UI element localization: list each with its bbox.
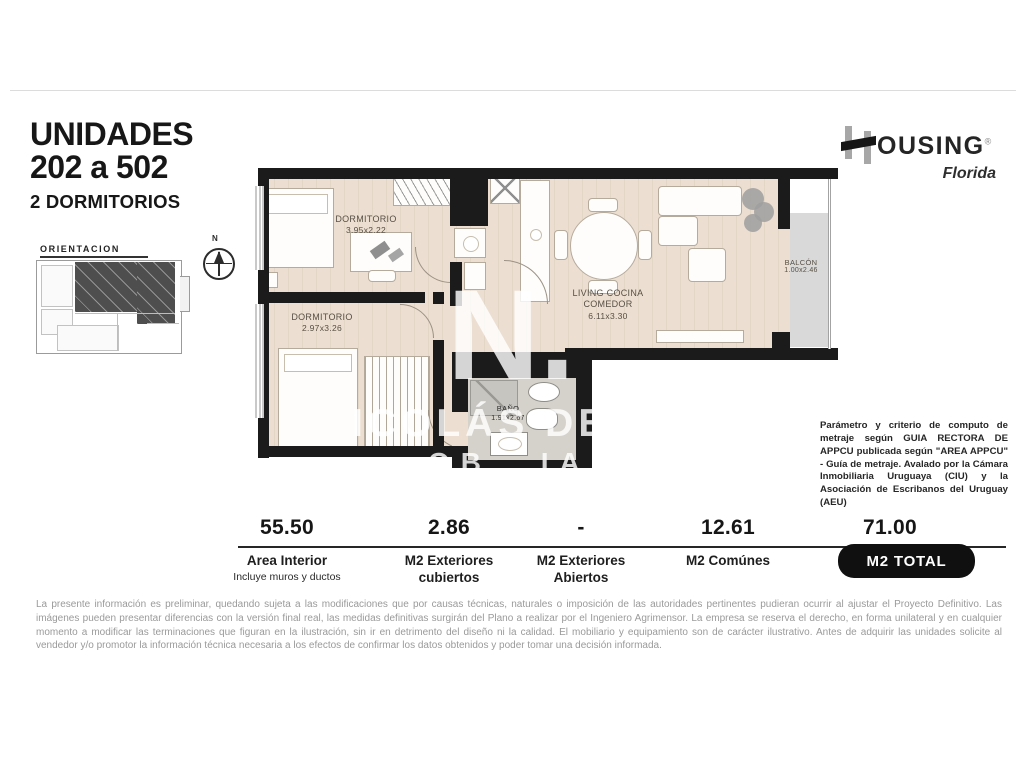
housing-h-icon <box>843 126 875 164</box>
compass-icon <box>203 248 235 280</box>
room-label-living: LIVING COCINA COMEDOR 6.11x3.30 <box>558 288 658 321</box>
area-note: Incluye muros y ductos <box>202 571 372 583</box>
floorplan-sheet: UNIDADES 202 a 502 2 DORMITORIOS OUSING®… <box>0 0 1024 768</box>
armchair <box>688 248 726 282</box>
window <box>255 186 264 270</box>
dining-chair <box>638 230 652 260</box>
desk-chair <box>368 270 396 282</box>
desk <box>350 232 412 272</box>
area-label: Area Interior <box>202 553 372 570</box>
area-col-interior: 55.50 Area Interior Incluye muros y duct… <box>202 516 372 583</box>
area-value: 12.61 <box>643 516 813 540</box>
orientation-label: ORIENTACION <box>40 244 120 254</box>
dining-table <box>570 212 638 280</box>
disclaimer-text: La presente información es preliminar, q… <box>36 598 1002 653</box>
brand-region: Florida <box>843 165 1008 183</box>
highlighted-unit-wing <box>137 262 175 324</box>
area-col-total: 71.00 <box>805 516 975 540</box>
title-line-2: 202 a 502 <box>30 151 193 184</box>
m2-total-label: M2 TOTAL <box>866 553 946 570</box>
unit-type-label: 2 DORMITORIOS <box>30 191 180 213</box>
appliance-washer <box>454 228 486 258</box>
area-col-comunes: 12.61 M2 Comúnes <box>643 516 813 570</box>
room-label-dormitorio-2: DORMITORIO 2.97x3.26 <box>272 312 372 334</box>
dining-chair <box>588 198 618 212</box>
area-label: M2 Comúnes <box>643 553 813 570</box>
sofa-chaise <box>658 216 698 246</box>
m2-total-badge: M2 TOTAL <box>838 544 975 578</box>
registered-mark: ® <box>985 137 993 147</box>
room-label-dormitorio-1: DORMITORIO 3.95x2.22 <box>316 214 416 236</box>
closet-2 <box>364 356 430 448</box>
area-value: 71.00 <box>805 516 975 540</box>
bathroom: BAÑO 1.91x2.67 <box>452 352 592 468</box>
orientation-underline <box>40 256 148 258</box>
room-label-balcon: BALCÓN 1.00x2.46 <box>773 258 829 276</box>
room-label-bano: BAÑO 1.91x2.67 <box>466 404 550 423</box>
minimap-balcony-stub <box>180 276 190 312</box>
dining-chair <box>554 230 568 260</box>
vanity <box>490 432 528 456</box>
site-minimap <box>36 260 182 354</box>
window <box>255 304 264 418</box>
compass-north-label: N <box>212 234 218 243</box>
area-label-2: Abiertos <box>496 570 666 587</box>
sink <box>528 382 560 402</box>
brand-logo: OUSING® Florida <box>843 126 1008 183</box>
area-col-ext-abiertos: - M2 Exteriores Abiertos <box>496 516 666 587</box>
bed-2 <box>278 348 358 450</box>
brand-name: OUSING® <box>877 132 993 161</box>
page-title: UNIDADES 202 a 502 <box>30 118 193 183</box>
floor-balcony <box>790 213 828 347</box>
title-line-1: UNIDADES <box>30 118 193 151</box>
top-divider <box>10 90 1016 91</box>
sofa <box>658 186 742 216</box>
area-value: 55.50 <box>202 516 372 540</box>
metraje-note: Parámetro y criterio de computo de metra… <box>820 420 1008 510</box>
area-value: - <box>496 516 666 540</box>
area-label: M2 Exteriores <box>496 553 666 570</box>
tv-console <box>656 330 744 343</box>
appliance-fridge <box>464 262 486 290</box>
wardrobe-1 <box>393 176 457 206</box>
floorplan: BAÑO 1.91x2.67 DORMITORIO 3.95x2.22 DORM… <box>250 164 842 476</box>
